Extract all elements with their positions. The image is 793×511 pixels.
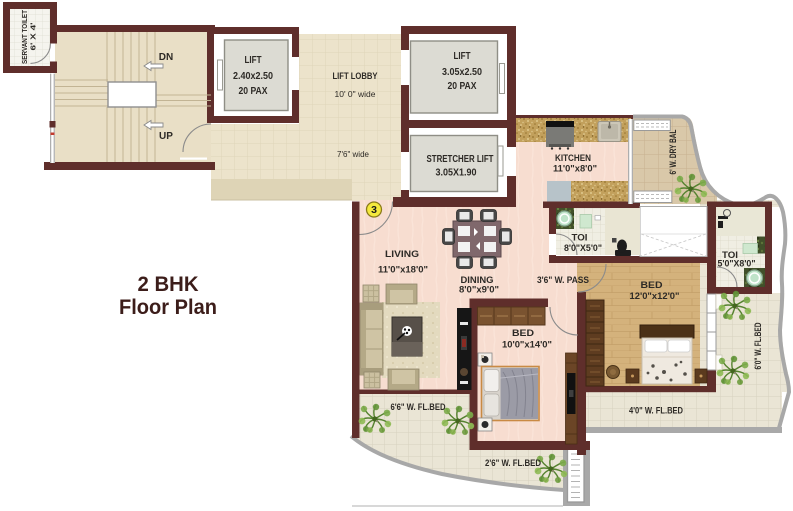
svg-text:6' W. DRY BAL: 6' W. DRY BAL	[668, 129, 678, 174]
svg-text:10'0"x14'0": 10'0"x14'0"	[502, 340, 552, 351]
svg-text:TOI: TOI	[572, 233, 588, 244]
svg-text:3: 3	[371, 204, 377, 216]
svg-text:UP: UP	[159, 131, 173, 142]
svg-text:SERVANT TOILET: SERVANT TOILET	[22, 9, 29, 64]
svg-text:KITCHEN: KITCHEN	[555, 153, 591, 164]
svg-text:2'6" W. FL.BED: 2'6" W. FL.BED	[485, 458, 541, 469]
svg-text:20 PAX: 20 PAX	[448, 81, 477, 92]
svg-text:LIFT: LIFT	[245, 55, 262, 66]
svg-text:7'6" wide: 7'6" wide	[337, 149, 369, 159]
svg-text:BED: BED	[512, 328, 534, 339]
svg-text:4'0" W. FL.BED: 4'0" W. FL.BED	[629, 406, 683, 417]
svg-text:LIFT LOBBY: LIFT LOBBY	[333, 71, 378, 81]
svg-text:2 BHK: 2 BHK	[138, 272, 199, 296]
svg-text:3.05X1.90: 3.05X1.90	[436, 168, 477, 179]
svg-text:5'0"X8'0": 5'0"X8'0"	[718, 259, 756, 270]
svg-text:Floor Plan: Floor Plan	[119, 295, 217, 319]
svg-text:2.40x2.50: 2.40x2.50	[233, 71, 273, 82]
svg-text:LIFT: LIFT	[454, 51, 471, 62]
svg-text:11'0"x8'0": 11'0"x8'0"	[553, 164, 597, 175]
svg-text:3.05x2.50: 3.05x2.50	[442, 67, 482, 78]
svg-text:6' X 4': 6' X 4'	[31, 22, 38, 50]
svg-text:11'0"x18'0": 11'0"x18'0"	[378, 265, 428, 276]
svg-text:10' 0" wide: 10' 0" wide	[335, 89, 376, 99]
svg-text:STRETCHER LIFT: STRETCHER LIFT	[427, 154, 494, 165]
svg-text:8'0"X5'0": 8'0"X5'0"	[564, 243, 602, 254]
svg-text:3'6" W. PASS: 3'6" W. PASS	[537, 275, 589, 286]
svg-text:6'6" W. FL.BED: 6'6" W. FL.BED	[391, 402, 446, 413]
svg-text:12'0"x12'0": 12'0"x12'0"	[630, 291, 680, 302]
svg-text:8'0"x9'0": 8'0"x9'0"	[459, 285, 499, 296]
svg-text:BED: BED	[641, 280, 663, 291]
svg-text:6'0" W. FL.BED: 6'0" W. FL.BED	[753, 322, 764, 369]
svg-text:LIVING: LIVING	[385, 249, 419, 260]
svg-text:DN: DN	[159, 52, 173, 63]
svg-text:20 PAX: 20 PAX	[239, 86, 268, 97]
